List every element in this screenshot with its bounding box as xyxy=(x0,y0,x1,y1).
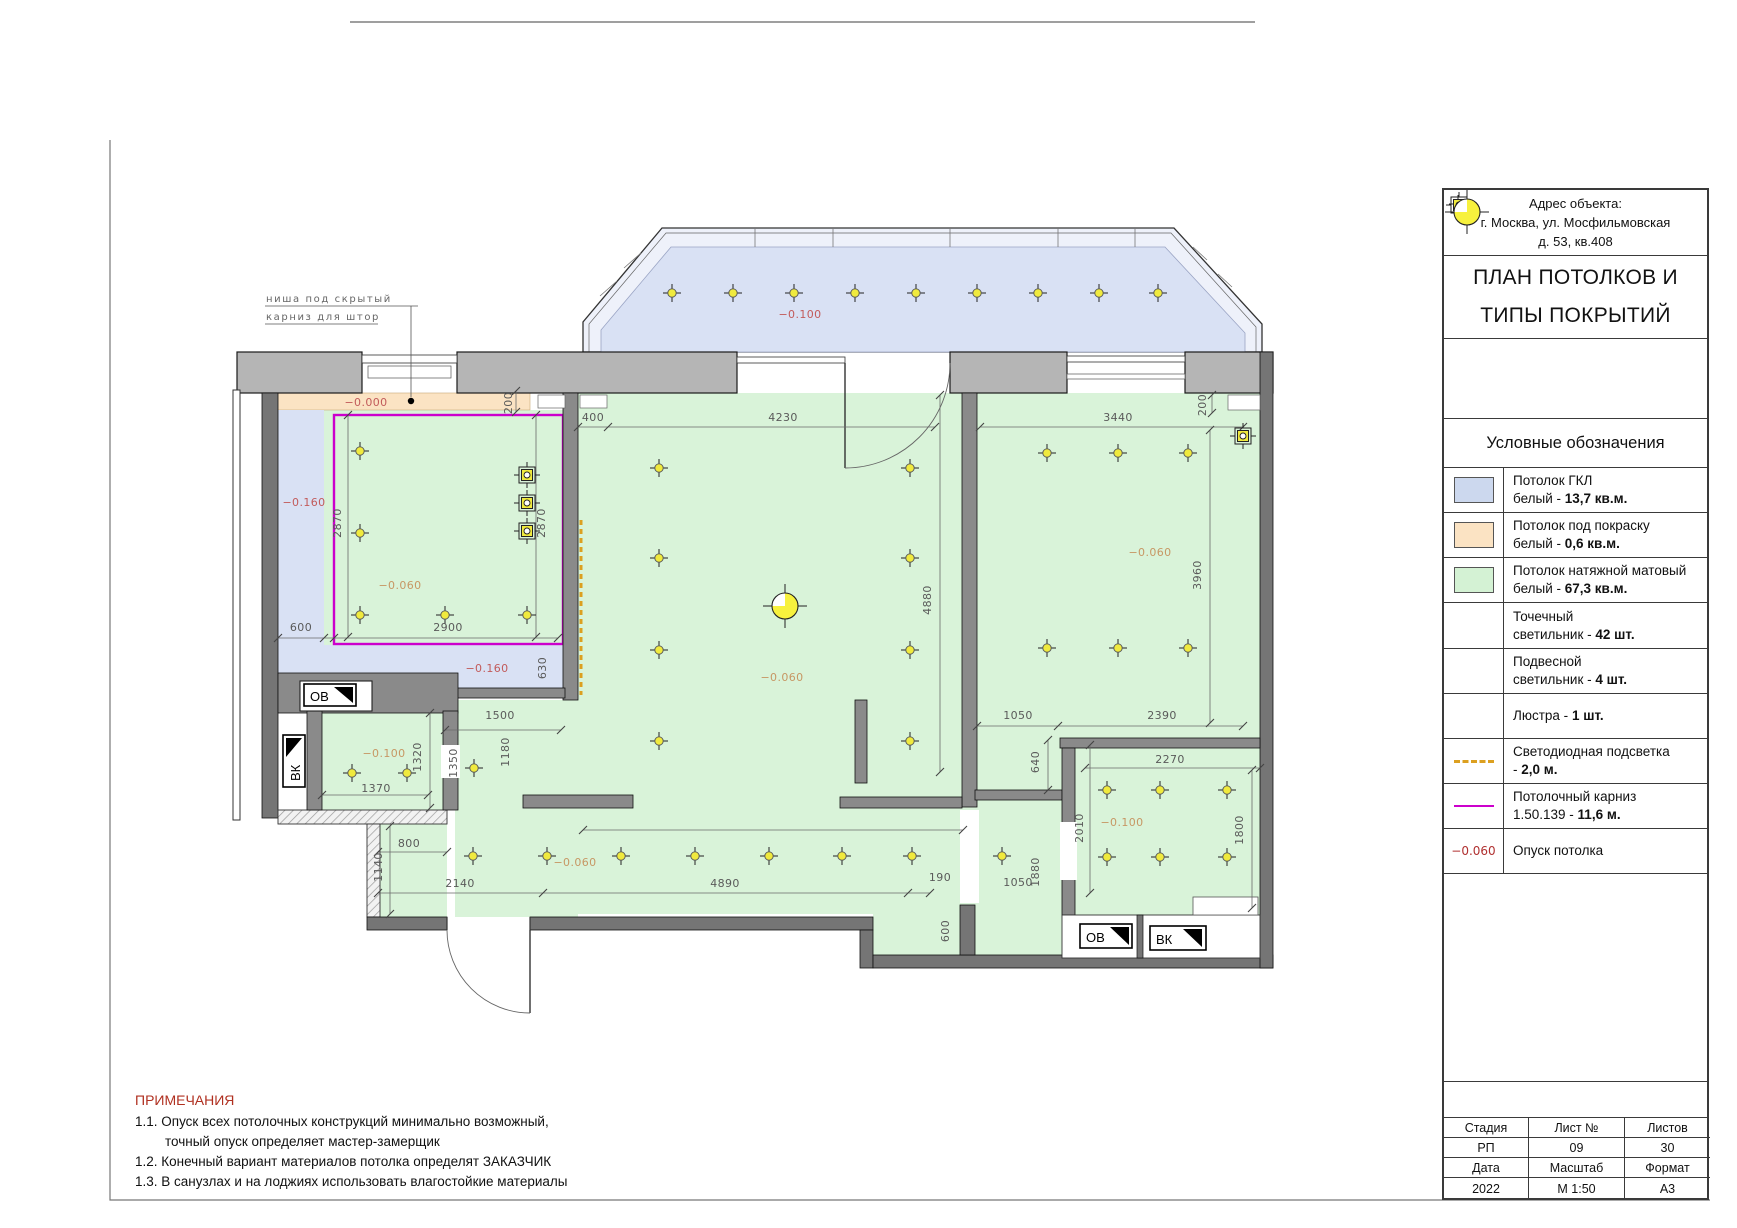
level-label: −0.060 xyxy=(378,579,421,592)
wall-left xyxy=(262,393,278,818)
scale-value: М 1:50 xyxy=(1529,1178,1625,1200)
niche-annotation: ниша под скрытый xyxy=(266,294,392,305)
dimension-label: 4230 xyxy=(768,411,798,424)
level-label: −0.160 xyxy=(282,496,325,509)
niche-annotation: карниз для штор xyxy=(266,312,380,323)
wall-right xyxy=(1260,352,1273,968)
dimension-label: 1350 xyxy=(447,748,460,778)
kitchen-ceiling xyxy=(1073,748,1260,915)
vent-shaft-label: ОВ xyxy=(304,684,356,706)
wall-hatched-h xyxy=(278,810,447,824)
svg-text:ОВ: ОВ xyxy=(310,689,329,704)
kitchen-niche xyxy=(1193,897,1258,915)
title-block-empty-small xyxy=(1444,1082,1707,1118)
dimension-label: 1370 xyxy=(361,782,391,795)
stamp-row-values-1: РП 09 30 xyxy=(1444,1138,1707,1158)
stamp-row-values-2: 2022 М 1:50 А3 xyxy=(1444,1178,1707,1200)
dimension-label: 640 xyxy=(1029,751,1042,773)
dimension-label: 2010 xyxy=(1073,813,1086,843)
water-shaft-label: ВК xyxy=(283,735,305,787)
note-line: 1.1. Опуск всех потолочных конструкций м… xyxy=(135,1112,655,1132)
dimension-label: 600 xyxy=(939,920,952,942)
legend-item-gkl: Потолок ГКЛ белый - 13,7 кв.м. xyxy=(1444,468,1707,513)
legend-item-cornice: Потолочный карниз 1.50.139 - 11,6 м. xyxy=(1444,784,1707,829)
level-label: −0.160 xyxy=(465,662,508,675)
legend-item-led: Светодиодная подсветка - 2,0 м. xyxy=(1444,739,1707,784)
dimension-label: 2140 xyxy=(445,877,475,890)
legend-header: Условные обозначения xyxy=(1444,419,1707,468)
level-label: −0.060 xyxy=(1128,546,1171,559)
dimension-label: 1180 xyxy=(499,737,512,767)
title-block: Адрес объекта: г. Москва, ул. Мосфильмов… xyxy=(1442,188,1709,1200)
address-line: д. 53, кв.408 xyxy=(1444,232,1707,251)
dimension-label: 1050 xyxy=(1003,709,1033,722)
dimension-label: 4880 xyxy=(921,585,934,615)
dimension-label: 1320 xyxy=(411,742,424,772)
dimension-label: 2900 xyxy=(433,621,463,634)
legend-item-spot: Точечный светильник - 42 шт. xyxy=(1444,603,1707,649)
date-value: 2022 xyxy=(1444,1178,1529,1200)
dimension-label: 200 xyxy=(1196,394,1209,416)
cornice-line-icon xyxy=(1454,805,1494,807)
dimension-label: 1800 xyxy=(1233,815,1246,845)
water-shaft-label-2: ВК xyxy=(1150,926,1206,950)
level-label: −0.060 xyxy=(760,671,803,684)
drawing-sheet: ОВ ВК ОВ ВК −0.100−0.000−0.160−0.160−0.0… xyxy=(0,0,1737,1228)
dimension-label: 3440 xyxy=(1103,411,1133,424)
notes-title: ПРИМЕЧАНИЯ xyxy=(135,1090,655,1110)
bathroom-ceiling xyxy=(322,713,443,810)
legend-item-paint: Потолок под покраску белый - 0,6 кв.м. xyxy=(1444,513,1707,558)
legend-item-pendant: Подвесной светильник - 4 шт. xyxy=(1444,649,1707,694)
level-label: −0.060 xyxy=(553,856,596,869)
legend-item-level: −0.060 Опуск потолка xyxy=(1444,829,1707,874)
dimension-label: 1140 xyxy=(372,852,385,882)
window-balcony xyxy=(737,357,845,363)
stamp-row-headers-2: Дата Масштаб Формат xyxy=(1444,1158,1707,1178)
title-block-spacer xyxy=(1444,339,1707,419)
stage-value: РП xyxy=(1444,1138,1529,1158)
format-value: А3 xyxy=(1625,1178,1710,1200)
notes-block: ПРИМЕЧАНИЯ 1.1. Опуск всех потолочных ко… xyxy=(135,1090,655,1192)
stamp-row-headers-1: Стадия Лист № Листов xyxy=(1444,1118,1707,1138)
dimension-label: 2870 xyxy=(331,508,344,538)
dimension-label: 190 xyxy=(929,871,951,884)
title-block-empty xyxy=(1444,874,1707,1082)
dimension-label: 1500 xyxy=(485,709,515,722)
level-label: −0.100 xyxy=(778,308,821,321)
sheet-number: 09 xyxy=(1529,1138,1625,1158)
dimension-label: 630 xyxy=(536,657,549,679)
entrance-door-arc xyxy=(447,917,530,1013)
sheets-total: 30 xyxy=(1625,1138,1710,1158)
legend-item-stretch: Потолок натяжной матовый белый - 67,3 кв… xyxy=(1444,558,1707,603)
svg-text:ОВ: ОВ xyxy=(1086,930,1105,945)
dimension-label: 2390 xyxy=(1147,709,1177,722)
dimension-label: 4890 xyxy=(710,877,740,890)
note-line: точный опуск определяет мастер-замерщик xyxy=(135,1132,655,1152)
dimension-label: 3960 xyxy=(1191,560,1204,590)
vent-shaft-label-2: ОВ xyxy=(1080,924,1132,948)
dimension-label: 800 xyxy=(398,837,420,850)
legend-item-chandelier: Люстра - 1 шт. xyxy=(1444,694,1707,739)
swatch-paint xyxy=(1454,522,1494,548)
level-label: −0.100 xyxy=(1100,816,1143,829)
dimension-label: 1050 xyxy=(1003,876,1033,889)
dimension-label: 2870 xyxy=(535,508,548,538)
svg-text:ВК: ВК xyxy=(288,764,303,781)
swatch-stretch xyxy=(1454,567,1494,593)
dimension-label: 200 xyxy=(502,392,515,414)
level-label: −0.000 xyxy=(344,396,387,409)
loggia-glazing-left xyxy=(233,390,240,820)
sheet-title: ПЛАН ПОТОЛКОВ И ТИПЫ ПОКРЫТИЙ xyxy=(1444,256,1707,339)
swatch-gkl xyxy=(1454,477,1494,503)
chandelier-icon xyxy=(1444,190,1490,234)
svg-text:ВК: ВК xyxy=(1156,932,1173,947)
led-strip-icon xyxy=(1454,760,1494,763)
level-mark-icon: −0.060 xyxy=(1451,844,1495,858)
bedroom2-ceiling-ext xyxy=(977,738,1060,790)
stamp-table: Стадия Лист № Листов РП 09 30 Дата Масшт… xyxy=(1444,1118,1707,1200)
dimension-label: 400 xyxy=(582,411,604,424)
window-bedroom2 xyxy=(1067,356,1185,362)
window-niche xyxy=(362,355,457,363)
dimension-label: 2270 xyxy=(1155,753,1185,766)
note-line: 1.2. Конечный вариант материалов потолка… xyxy=(135,1152,655,1172)
note-line: 1.3. В санузлах и на лоджиях использоват… xyxy=(135,1172,655,1192)
paint-ceiling-strip xyxy=(267,393,530,410)
level-label: −0.100 xyxy=(362,747,405,760)
dimension-label: 600 xyxy=(290,621,312,634)
